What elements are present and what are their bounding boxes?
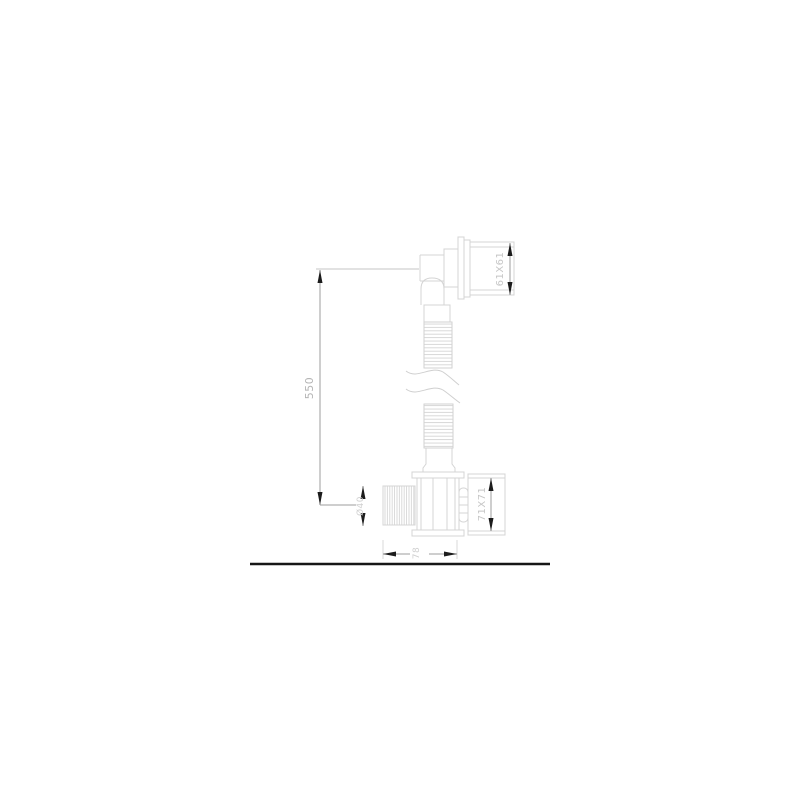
dim-550-arrow-down [318, 492, 323, 505]
elbow-dome-adapter [421, 278, 444, 305]
dim-61x61-arrow-up [508, 243, 513, 256]
dim-71x71-arrow-down [489, 518, 494, 531]
hose-bottom-sleeve [423, 448, 455, 472]
outlet-square-cup [470, 242, 514, 295]
dimension-61x61: 61X61 [495, 243, 513, 295]
outlet-hub [444, 249, 458, 287]
dimension-thread: Ø40 [355, 486, 366, 526]
break-curve-upper [406, 370, 459, 385]
flange-plate-inner [464, 240, 470, 297]
dimension-550: 550 [303, 269, 419, 505]
dim-width-arrow-right [444, 552, 457, 557]
dim-width-arrow-left [383, 552, 396, 557]
corrugated-hose [406, 322, 460, 472]
outlet-horizontal-pipe [420, 255, 444, 281]
trap-top-plate [412, 472, 464, 478]
trap-bottom-plate [412, 530, 464, 536]
dim-61x61-label: 61X61 [495, 252, 506, 287]
dim-thread-label: Ø40 [355, 496, 366, 516]
dim-71x71-arrow-up [489, 478, 494, 491]
dim-width-label: 78 [412, 547, 422, 559]
flange-plate-outer [458, 237, 464, 299]
drain-hose-drawing: 550 61X61 71X71 Ø40 78 [0, 0, 800, 800]
dimension-71x71: 71X71 [477, 478, 494, 531]
break-curve-lower [406, 388, 460, 403]
dim-550-arrow-up [318, 270, 323, 283]
hose-ribs-lower [424, 404, 453, 448]
trap-body [417, 478, 459, 530]
technical-drawing-canvas: 550 61X61 71X71 Ø40 78 [0, 0, 800, 800]
dim-61x61-arrow-down [508, 282, 513, 295]
hose-ribs-upper [424, 322, 452, 368]
dim-550-label: 550 [303, 377, 316, 400]
dim-71x71-label: 71X71 [477, 487, 488, 522]
threaded-stub [383, 486, 415, 525]
dimension-width: 78 [383, 540, 457, 559]
hose-top-sleeve [424, 305, 450, 322]
